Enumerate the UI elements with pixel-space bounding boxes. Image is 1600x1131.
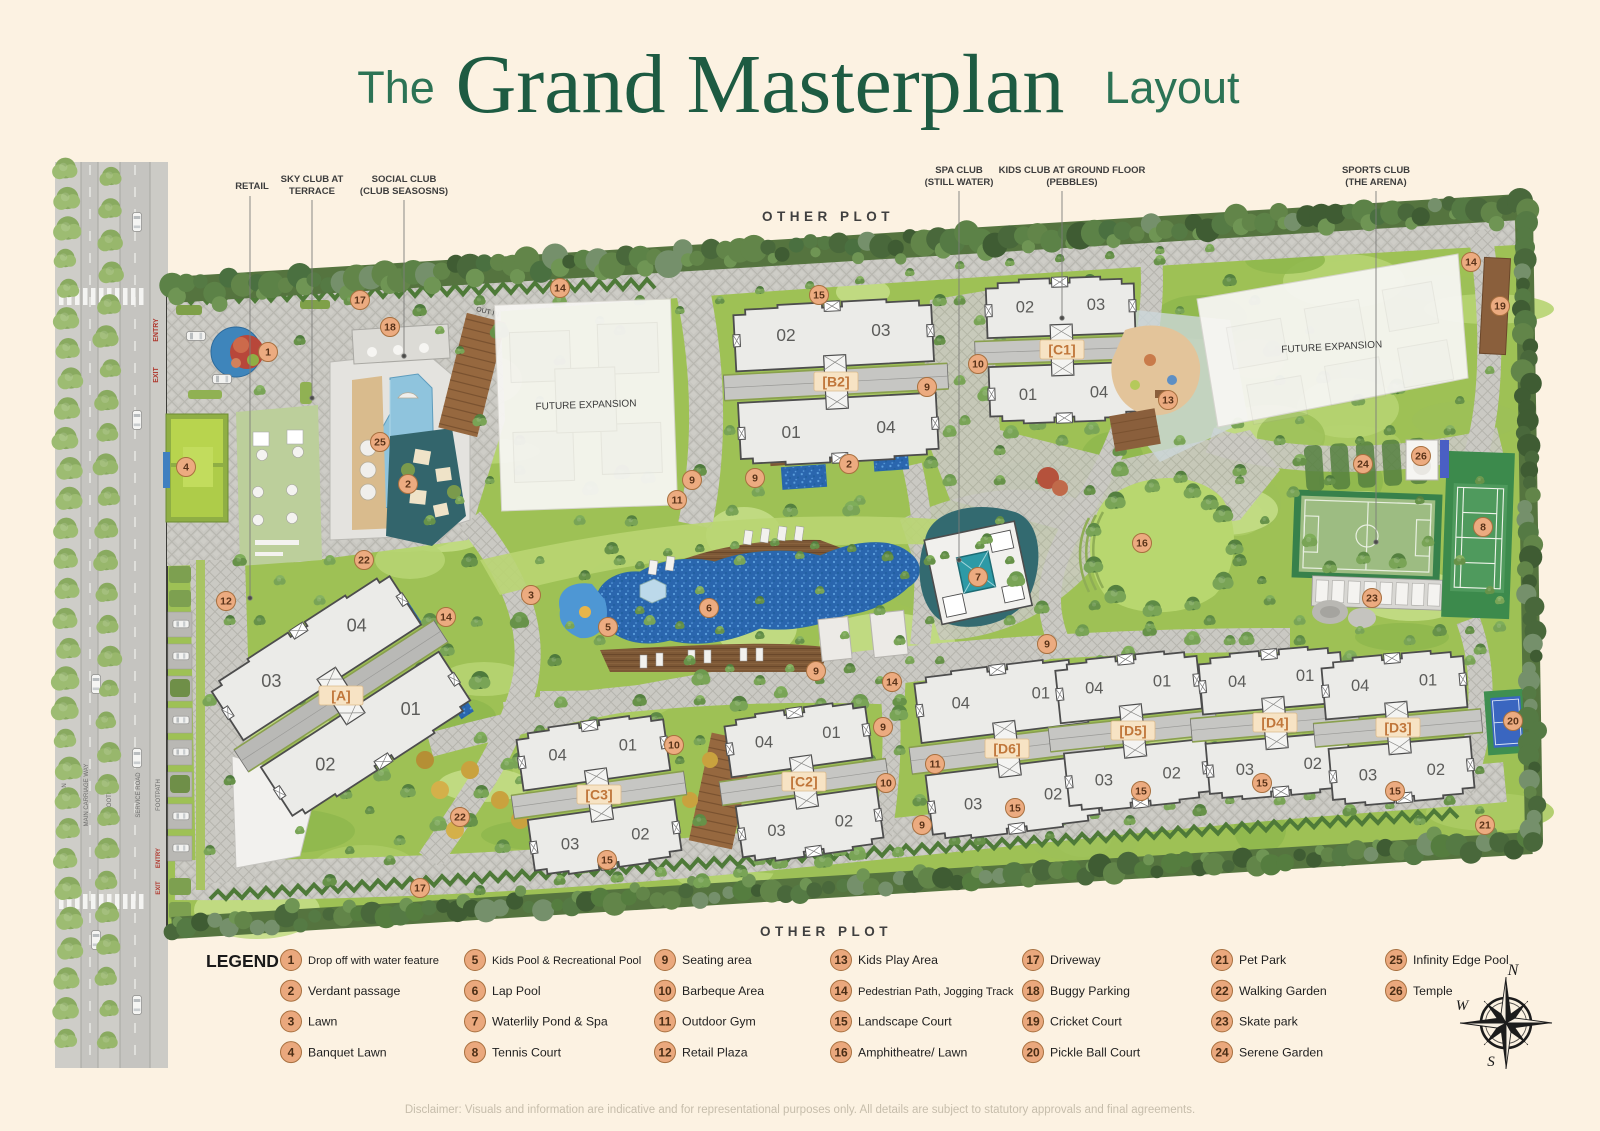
svg-text:03: 03 <box>1236 761 1254 779</box>
svg-text:03: 03 <box>964 795 982 813</box>
svg-text:Layout: Layout <box>1104 62 1240 113</box>
svg-text:Landscape Court: Landscape Court <box>858 1015 952 1029</box>
svg-text:04: 04 <box>347 616 367 636</box>
svg-text:KIDS CLUB AT GROUND FLOOR: KIDS CLUB AT GROUND FLOOR <box>999 165 1146 176</box>
svg-text:6: 6 <box>706 603 712 615</box>
svg-text:SPORTS CLUB: SPORTS CLUB <box>1342 165 1410 176</box>
svg-text:Pet Park: Pet Park <box>1239 953 1287 967</box>
svg-text:Kids Pool & Recreational Pool: Kids Pool & Recreational Pool <box>492 955 641 967</box>
svg-text:9: 9 <box>919 820 925 832</box>
svg-text:SERVICE ROAD: SERVICE ROAD <box>136 772 142 818</box>
svg-text:18: 18 <box>1026 984 1040 998</box>
svg-text:04: 04 <box>1085 680 1103 698</box>
svg-text:19: 19 <box>1026 1015 1040 1029</box>
svg-text:26: 26 <box>1389 984 1403 998</box>
svg-text:[C2]: [C2] <box>790 774 817 790</box>
svg-text:14: 14 <box>1465 257 1477 269</box>
svg-text:10: 10 <box>668 740 680 752</box>
svg-text:Infinity Edge Pool: Infinity Edge Pool <box>1413 953 1509 967</box>
svg-text:03: 03 <box>1095 771 1113 789</box>
svg-text:16: 16 <box>1136 538 1148 550</box>
svg-text:(PEBBLES): (PEBBLES) <box>1046 177 1097 188</box>
svg-text:[C1]: [C1] <box>1048 342 1075 358</box>
svg-text:17: 17 <box>354 295 366 307</box>
svg-text:04: 04 <box>548 746 566 764</box>
svg-text:01: 01 <box>822 724 840 742</box>
svg-text:02: 02 <box>315 754 335 774</box>
svg-text:01: 01 <box>1019 386 1037 404</box>
svg-text:15: 15 <box>1389 786 1401 798</box>
svg-text:02: 02 <box>1016 299 1034 317</box>
svg-text:11: 11 <box>671 495 682 507</box>
svg-text:[D3]: [D3] <box>1384 720 1411 736</box>
svg-text:02: 02 <box>776 325 795 345</box>
svg-text:Temple: Temple <box>1413 984 1453 998</box>
svg-text:9: 9 <box>752 473 758 485</box>
svg-text:Retail Plaza: Retail Plaza <box>682 1045 748 1059</box>
svg-text:01: 01 <box>619 737 637 755</box>
svg-text:03: 03 <box>1359 767 1377 785</box>
svg-text:10: 10 <box>972 359 984 371</box>
svg-text:9: 9 <box>880 722 886 734</box>
svg-text:Buggy Parking: Buggy Parking <box>1050 984 1130 998</box>
svg-text:9: 9 <box>662 953 669 967</box>
svg-text:W: W <box>1456 998 1470 1014</box>
svg-text:Amphitheatre/ Lawn: Amphitheatre/ Lawn <box>858 1045 968 1059</box>
svg-text:Seating area: Seating area <box>682 953 752 967</box>
svg-text:14: 14 <box>440 612 452 624</box>
svg-text:01: 01 <box>1419 671 1437 689</box>
svg-text:10: 10 <box>880 778 892 790</box>
svg-text:11: 11 <box>929 759 940 771</box>
svg-text:01: 01 <box>1296 667 1314 685</box>
svg-text:15: 15 <box>1256 778 1268 790</box>
svg-text:Kids Play Area: Kids Play Area <box>858 953 938 967</box>
svg-text:25: 25 <box>374 437 386 449</box>
svg-text:[D6]: [D6] <box>993 741 1020 757</box>
svg-text:01: 01 <box>401 699 421 719</box>
svg-text:9: 9 <box>924 382 930 394</box>
svg-text:(THE ARENA): (THE ARENA) <box>1345 177 1406 188</box>
svg-text:N: N <box>1507 962 1520 979</box>
svg-text:1: 1 <box>288 953 295 967</box>
svg-text:Disclaimer: Visuals and inform: Disclaimer: Visuals and information are … <box>405 1104 1195 1116</box>
svg-text:18: 18 <box>384 322 396 334</box>
svg-text:21: 21 <box>1479 820 1491 832</box>
svg-text:Pickle Ball Court: Pickle Ball Court <box>1050 1045 1141 1059</box>
svg-text:(CLUB SEASOSNS): (CLUB SEASOSNS) <box>360 186 448 197</box>
svg-text:23: 23 <box>1366 593 1378 605</box>
svg-text:Serene Garden: Serene Garden <box>1239 1045 1323 1059</box>
svg-text:Lawn: Lawn <box>308 1015 338 1029</box>
svg-text:MAIN CARRIAGE WAY: MAIN CARRIAGE WAY <box>84 764 90 827</box>
svg-text:9: 9 <box>689 475 695 487</box>
svg-text:8: 8 <box>472 1045 479 1059</box>
svg-text:13: 13 <box>834 953 848 967</box>
svg-text:10: 10 <box>658 984 672 998</box>
svg-text:04: 04 <box>1228 673 1246 691</box>
svg-text:1: 1 <box>265 347 271 359</box>
svg-text:9: 9 <box>1044 639 1050 651</box>
svg-text:Outdoor Gym: Outdoor Gym <box>682 1015 756 1029</box>
svg-text:2: 2 <box>846 459 852 471</box>
svg-text:Waterlily Pond & Spa: Waterlily Pond & Spa <box>492 1015 608 1029</box>
svg-text:EXIT: EXIT <box>153 366 160 382</box>
svg-text:04: 04 <box>876 417 896 437</box>
svg-text:Drop off with water feature: Drop off with water feature <box>308 955 439 967</box>
svg-text:02: 02 <box>1044 785 1062 803</box>
svg-text:SPA CLUB: SPA CLUB <box>935 165 983 176</box>
svg-text:Verdant passage: Verdant passage <box>308 984 400 998</box>
svg-text:ENTRY: ENTRY <box>153 318 160 342</box>
svg-text:03: 03 <box>871 320 890 340</box>
svg-text:Banquet Lawn: Banquet Lawn <box>308 1045 387 1059</box>
svg-text:17: 17 <box>1026 953 1040 967</box>
svg-text:14: 14 <box>554 283 566 295</box>
svg-text:01: 01 <box>1153 673 1171 691</box>
svg-text:6: 6 <box>472 984 479 998</box>
svg-text:14: 14 <box>834 984 848 998</box>
svg-text:2: 2 <box>288 984 295 998</box>
svg-text:Barbeque Area: Barbeque Area <box>682 984 764 998</box>
svg-text:2: 2 <box>405 479 411 491</box>
svg-text:5: 5 <box>605 622 611 634</box>
svg-text:01: 01 <box>1032 685 1050 703</box>
svg-text:15: 15 <box>834 1015 848 1029</box>
svg-text:Cricket Court: Cricket Court <box>1050 1015 1122 1029</box>
svg-text:(STILL WATER): (STILL WATER) <box>925 177 994 188</box>
svg-text:7: 7 <box>975 572 981 584</box>
svg-text:02: 02 <box>1427 761 1445 779</box>
svg-text:02: 02 <box>835 813 853 831</box>
svg-text:OTHER PLOT: OTHER PLOT <box>760 924 892 939</box>
svg-text:[B2]: [B2] <box>822 374 849 390</box>
svg-text:OTHER PLOT: OTHER PLOT <box>762 209 894 224</box>
svg-text:01: 01 <box>781 422 800 442</box>
svg-text:RETAIL: RETAIL <box>235 181 269 192</box>
svg-text:04: 04 <box>1090 383 1108 401</box>
svg-text:22: 22 <box>454 812 466 824</box>
svg-text:14: 14 <box>886 677 898 689</box>
svg-text:Tennis Court: Tennis Court <box>492 1045 562 1059</box>
svg-text:TERRACE: TERRACE <box>289 186 335 197</box>
svg-text:03: 03 <box>767 822 785 840</box>
svg-text:16: 16 <box>834 1045 848 1059</box>
svg-text:EXIT: EXIT <box>156 881 162 895</box>
svg-text:S: S <box>1487 1054 1495 1070</box>
svg-text:04: 04 <box>755 733 773 751</box>
svg-text:5: 5 <box>472 953 479 967</box>
svg-text:02: 02 <box>1163 764 1181 782</box>
svg-text:03: 03 <box>261 671 281 691</box>
svg-text:7: 7 <box>472 1015 479 1029</box>
svg-text:13: 13 <box>1162 395 1174 407</box>
svg-text:15: 15 <box>601 855 613 867</box>
svg-text:04: 04 <box>952 695 970 713</box>
svg-text:15: 15 <box>1009 803 1021 815</box>
svg-text:The: The <box>357 62 435 113</box>
svg-text:20: 20 <box>1026 1045 1040 1059</box>
svg-text:02: 02 <box>1304 755 1322 773</box>
svg-text:Walking Garden: Walking Garden <box>1239 984 1327 998</box>
svg-text:[D4]: [D4] <box>1261 715 1288 731</box>
svg-text:[C3]: [C3] <box>585 787 612 803</box>
svg-text:3: 3 <box>288 1015 295 1029</box>
svg-text:Skate park: Skate park <box>1239 1015 1299 1029</box>
svg-text:25: 25 <box>1389 953 1403 967</box>
svg-text:03: 03 <box>1087 296 1105 314</box>
svg-text:15: 15 <box>1135 786 1147 798</box>
svg-text:ENTRY: ENTRY <box>156 848 162 868</box>
svg-text:03: 03 <box>561 835 579 853</box>
svg-text:4: 4 <box>288 1045 295 1059</box>
svg-text:Pedestrian Path, Jogging Track: Pedestrian Path, Jogging Track <box>858 986 1014 998</box>
svg-text:23: 23 <box>1215 1015 1229 1029</box>
svg-text:24: 24 <box>1215 1045 1229 1059</box>
svg-text:[D5]: [D5] <box>1119 723 1146 739</box>
svg-text:22: 22 <box>1215 984 1229 998</box>
svg-text:15: 15 <box>813 290 825 302</box>
svg-text:12: 12 <box>658 1045 672 1059</box>
svg-text:21: 21 <box>1215 953 1229 967</box>
svg-text:Grand Masterplan: Grand Masterplan <box>456 38 1065 131</box>
svg-text:22: 22 <box>358 555 370 567</box>
svg-text:19: 19 <box>1494 301 1506 313</box>
svg-text:26: 26 <box>1415 451 1427 463</box>
svg-text:FOOTPATH: FOOTPATH <box>156 779 162 811</box>
svg-text:8: 8 <box>1480 522 1486 534</box>
svg-text:[A]: [A] <box>331 688 350 704</box>
svg-text:04: 04 <box>1351 677 1369 695</box>
svg-text:12: 12 <box>220 596 232 608</box>
svg-text:3: 3 <box>528 590 534 602</box>
svg-text:SOCIAL CLUB: SOCIAL CLUB <box>372 174 437 185</box>
svg-text:Driveway: Driveway <box>1050 953 1101 967</box>
svg-text:20: 20 <box>1507 716 1519 728</box>
svg-text:11: 11 <box>659 1015 672 1029</box>
svg-text:SKY CLUB AT: SKY CLUB AT <box>281 174 344 185</box>
svg-text:9: 9 <box>813 666 819 678</box>
svg-text:LEGEND: LEGEND <box>206 951 279 971</box>
svg-text:24: 24 <box>1357 459 1369 471</box>
svg-text:17: 17 <box>414 883 426 895</box>
svg-text:Lap Pool: Lap Pool <box>492 984 541 998</box>
svg-text:02: 02 <box>631 826 649 844</box>
svg-text:4: 4 <box>183 462 189 474</box>
